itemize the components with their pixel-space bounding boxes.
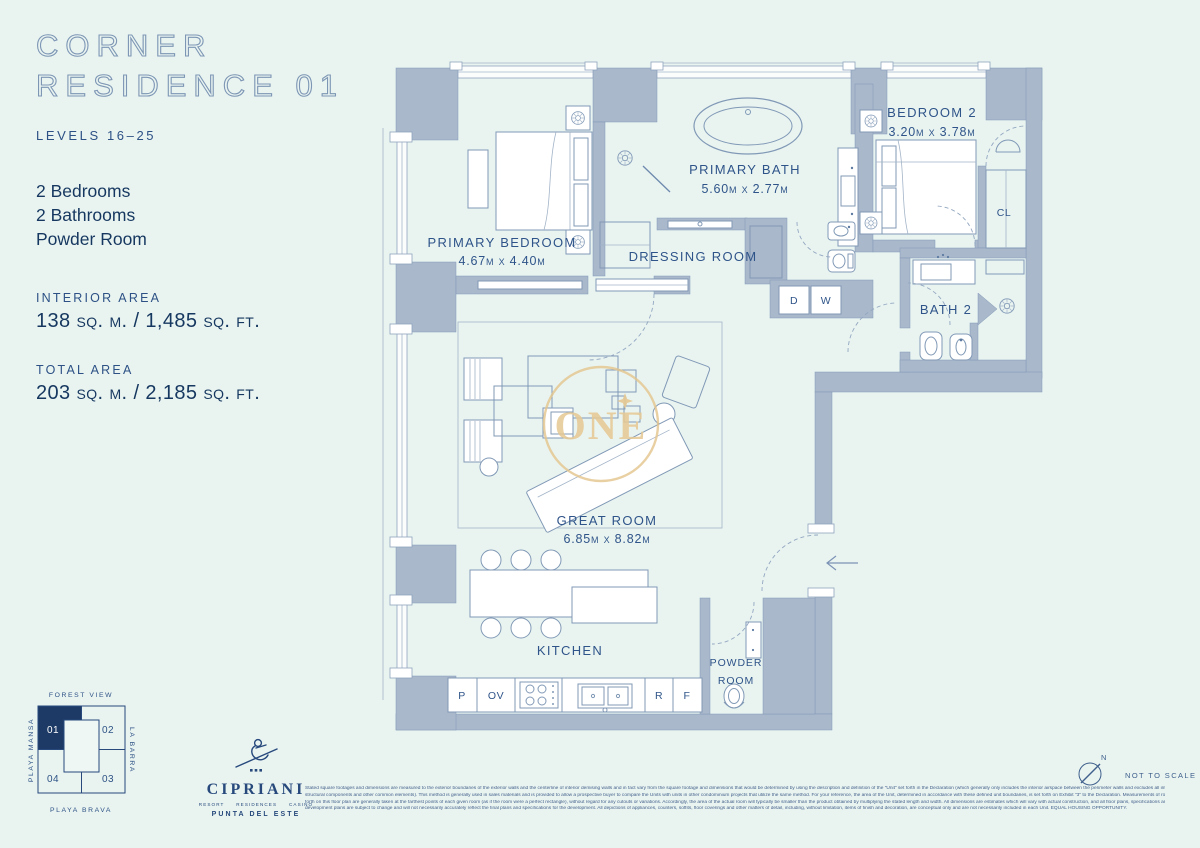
primary-bedroom-dims: 4.67m x 4.40m (459, 254, 546, 268)
sidebar: CORNER RESIDENCE 01 LEVELS 16–25 2 Bedro… (36, 26, 366, 405)
compass-block: N NOT TO SCALE (1065, 748, 1200, 793)
bath2-label: BATH 2 (920, 302, 972, 317)
brand-location: PUNTA DEL ESTE (198, 811, 314, 818)
keyplan-la-barra: LA BARRA (128, 727, 135, 773)
keyplan-forest-view: FOREST VIEW (49, 692, 113, 699)
total-area-label: TOTAL AREA (36, 363, 366, 377)
feature-list: 2 Bedrooms 2 Bathrooms Powder Room (36, 179, 366, 251)
feature-powder-room: Powder Room (36, 227, 366, 251)
floor-plan: D W (370, 45, 1070, 745)
keyplan-playa-brava: PLAYA BRAVA (50, 807, 112, 814)
title-line1: CORNER (36, 26, 366, 66)
entry-arrow-icon (827, 556, 858, 570)
disclaimer-line: development plans are subject to change … (305, 806, 1165, 813)
compass-icon (1079, 763, 1101, 785)
bedroom2-label: BEDROOM 2 (887, 105, 977, 120)
gondolier-icon (230, 736, 282, 774)
interior-area-label: INTERIOR AREA (36, 291, 366, 305)
washer-label: W (821, 295, 831, 307)
great-room-label: GREAT ROOM (557, 513, 658, 528)
keyplan-core (64, 720, 99, 772)
brand-name: CIPRIANI (198, 781, 314, 799)
primary-bath-dims: 5.60m x 2.77m (702, 182, 789, 196)
disclaimer: Stated square footages and dimensions ar… (305, 786, 1165, 813)
kitchen-label: KITCHEN (537, 643, 603, 658)
primary-bedroom-label: PRIMARY BEDROOM (427, 235, 576, 250)
powder-room-label-1: POWDER (710, 657, 763, 669)
toilet-icon (828, 222, 855, 272)
freezer-label: F (684, 690, 691, 702)
powder-room-label-2: ROOM (718, 675, 754, 687)
levels-label: LEVELS 16–25 (36, 128, 366, 143)
page-title: CORNER RESIDENCE 01 (36, 26, 366, 106)
keyplan-unit02-label: 02 (102, 725, 114, 736)
disclaimer-line: Stated square footages and dimensions ar… (305, 786, 1165, 793)
interior-area-value: 138 sq. m. / 1,485 sq. ft. (36, 310, 366, 333)
keyplan-unit03-label: 03 (102, 774, 114, 785)
compass-north-label: N (1101, 753, 1108, 762)
feature-bathrooms: 2 Bathrooms (36, 203, 366, 227)
oven-label: OV (488, 690, 504, 702)
primary-bath-label: PRIMARY BATH (689, 162, 801, 177)
bedroom2-dims: 3.20m x 3.78m (889, 125, 976, 139)
title-line2: RESIDENCE 01 (36, 66, 366, 106)
not-to-scale-label: NOT TO SCALE (1125, 771, 1196, 780)
dryer-label: D (790, 295, 798, 307)
brand-subtitle: RESORT RESIDENCES CASINO (198, 802, 314, 807)
total-area-value: 203 sq. m. / 2,185 sq. ft. (36, 382, 366, 405)
disclaimer-line: structural components and other common e… (305, 793, 1165, 800)
closet-label: CL (997, 207, 1011, 219)
dressing-room-label: DRESSING ROOM (629, 249, 758, 264)
pantry-label: P (458, 690, 466, 702)
disclaimer-line: forth on this floor plan are generally t… (305, 800, 1165, 807)
key-plan: FOREST VIEW 01 02 03 04 PLAYA MANSA LA B… (20, 680, 170, 825)
keyplan-unit04-label: 04 (47, 774, 59, 785)
keyplan-playa-mansa: PLAYA MANSA (28, 718, 35, 782)
refrigerator-label: R (655, 690, 663, 702)
keyplan-unit01-label: 01 (47, 725, 59, 736)
kitchen-furniture (448, 550, 702, 712)
one-watermark-text: ONE (555, 403, 648, 448)
great-room-dims: 6.85m x 8.82m (564, 532, 651, 546)
feature-bedrooms: 2 Bedrooms (36, 179, 366, 203)
floorplan-page: CORNER RESIDENCE 01 LEVELS 16–25 2 Bedro… (0, 0, 1200, 848)
brand-block: CIPRIANI RESORT RESIDENCES CASINO PUNTA … (198, 736, 314, 818)
